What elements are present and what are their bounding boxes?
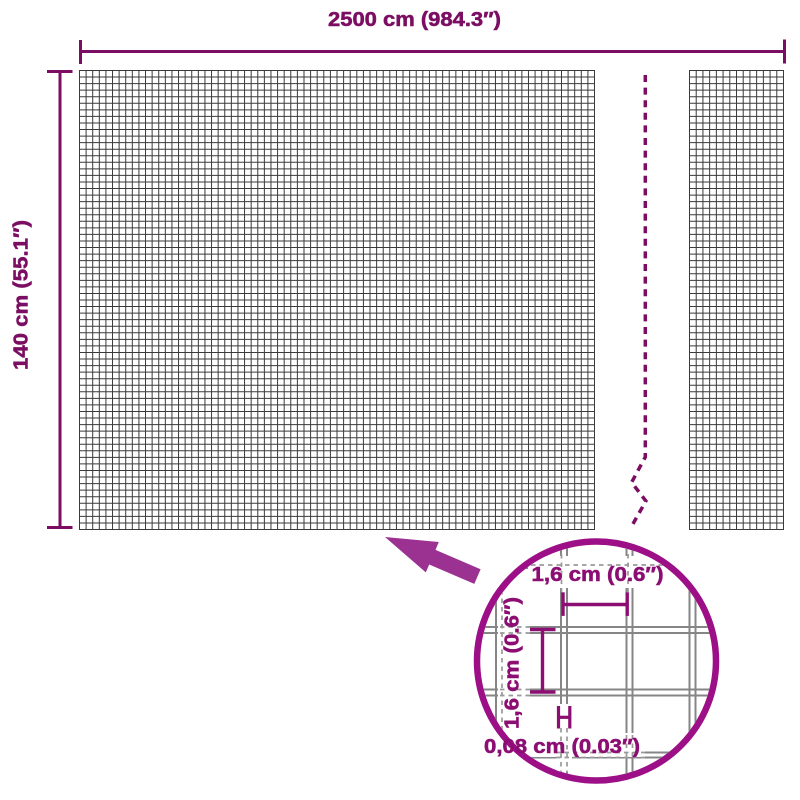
svg-text:1,6 cm (0.6″): 1,6 cm (0.6″) [532,563,664,586]
svg-text:140 cm (55.1″): 140 cm (55.1″) [10,220,33,370]
svg-text:1,6 cm (0.6″): 1,6 cm (0.6″) [501,597,524,729]
svg-text:0,08 cm (0.03″): 0,08 cm (0.03″) [484,735,640,758]
svg-text:2500 cm (984.3″): 2500 cm (984.3″) [328,8,501,31]
